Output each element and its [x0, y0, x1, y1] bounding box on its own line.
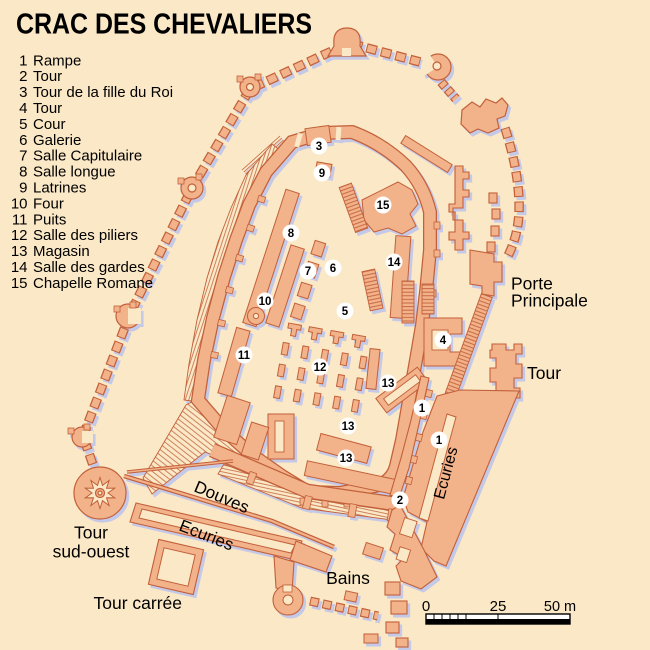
- svg-text:13: 13: [340, 453, 353, 465]
- svg-text:Salle Capitulaire: Salle Capitulaire: [33, 148, 142, 165]
- svg-text:2: 2: [397, 495, 403, 507]
- svg-text:6: 6: [330, 263, 336, 275]
- svg-text:15: 15: [11, 275, 28, 292]
- svg-text:Four: Four: [33, 195, 64, 212]
- svg-text:Cour: Cour: [33, 116, 66, 133]
- svg-text:10: 10: [259, 296, 272, 308]
- svg-text:Tour: Tour: [74, 523, 108, 543]
- svg-text:15: 15: [377, 200, 390, 212]
- svg-text:6: 6: [19, 132, 27, 149]
- svg-text:Tour: Tour: [33, 100, 62, 117]
- svg-text:Tour: Tour: [527, 363, 561, 383]
- svg-text:Tour carrée: Tour carrée: [94, 593, 183, 613]
- svg-text:Latrines: Latrines: [33, 180, 86, 197]
- svg-text:3: 3: [19, 84, 27, 101]
- svg-text:9: 9: [19, 180, 27, 197]
- svg-text:12: 12: [314, 362, 327, 374]
- svg-text:25: 25: [490, 598, 507, 615]
- svg-text:50 m: 50 m: [544, 599, 576, 615]
- svg-text:3: 3: [316, 141, 322, 153]
- svg-text:4: 4: [19, 100, 27, 117]
- svg-text:Salle des piliers: Salle des piliers: [33, 227, 138, 244]
- svg-text:14: 14: [11, 259, 28, 276]
- svg-text:2: 2: [19, 68, 27, 85]
- svg-text:9: 9: [319, 168, 325, 180]
- svg-text:1: 1: [419, 403, 426, 415]
- svg-text:0: 0: [422, 598, 430, 615]
- svg-text:Tour: Tour: [33, 68, 62, 85]
- svg-text:12: 12: [11, 227, 28, 244]
- svg-text:13: 13: [382, 378, 395, 390]
- svg-text:7: 7: [19, 148, 27, 165]
- svg-text:14: 14: [388, 257, 401, 269]
- svg-text:13: 13: [11, 243, 28, 260]
- svg-text:Puits: Puits: [33, 211, 66, 228]
- svg-text:1: 1: [436, 435, 443, 447]
- svg-text:5: 5: [342, 306, 349, 318]
- svg-text:8: 8: [19, 164, 27, 181]
- svg-text:11: 11: [12, 211, 28, 228]
- svg-text:1: 1: [19, 52, 27, 69]
- svg-text:Chapelle Romane: Chapelle Romane: [33, 275, 153, 292]
- svg-text:CRAC DES CHEVALIERS: CRAC DES CHEVALIERS: [16, 9, 312, 41]
- svg-text:Rampe: Rampe: [33, 52, 81, 69]
- svg-text:Principale: Principale: [511, 291, 588, 311]
- svg-text:Galerie: Galerie: [33, 132, 81, 149]
- svg-text:8: 8: [288, 228, 295, 240]
- svg-text:10: 10: [11, 195, 28, 212]
- svg-text:Bains: Bains: [326, 568, 370, 588]
- svg-text:11: 11: [238, 350, 251, 362]
- svg-text:7: 7: [305, 266, 311, 278]
- svg-text:Magasin: Magasin: [33, 243, 90, 260]
- svg-text:Salle des gardes: Salle des gardes: [33, 259, 145, 276]
- svg-text:Salle longue: Salle longue: [33, 164, 116, 181]
- svg-text:Tour de la fille du Roi: Tour de la fille du Roi: [33, 84, 173, 101]
- svg-text:sud-ouest: sud-ouest: [53, 542, 130, 562]
- svg-text:5: 5: [19, 116, 27, 133]
- svg-text:13: 13: [342, 421, 355, 433]
- svg-text:4: 4: [440, 335, 447, 347]
